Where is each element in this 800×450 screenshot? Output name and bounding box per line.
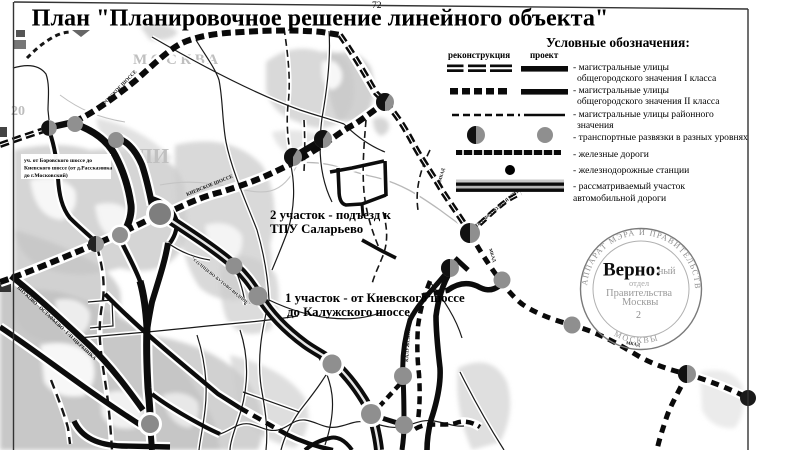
svg-text:- магистральные улицы районног: - магистральные улицы районного [573, 109, 714, 120]
svg-text:- магистральные улицы: - магистральные улицы [573, 62, 669, 73]
svg-text:Киевского шоссе (от д.Рассказо: Киевского шоссе (от д.Рассказовка [24, 165, 112, 172]
svg-text:автомобильной дороги: автомобильной дороги [573, 193, 666, 204]
svg-text:проект: проект [530, 50, 559, 60]
svg-text:- транспортные развязки в разн: - транспортные развязки в разных уровнях [573, 132, 748, 143]
svg-text:общегородского значения I клас: общегородского значения I класса [577, 73, 717, 84]
svg-text:до г.Московский): до г.Московский) [24, 172, 68, 179]
svg-text:отдел: отдел [629, 278, 650, 288]
svg-text:2 участок - подъезд к: 2 участок - подъезд к [270, 208, 391, 222]
svg-text:Условные обозначения:: Условные обозначения: [546, 35, 690, 50]
svg-text:Москвы: Москвы [622, 297, 658, 308]
svg-text:- магистральные улицы: - магистральные улицы [573, 85, 669, 96]
svg-text:до Калужского шоссе: до Калужского шоссе [287, 305, 410, 319]
svg-text:- железнодорожные станции: - железнодорожные станции [573, 165, 689, 176]
svg-text:ТПУ Саларьево: ТПУ Саларьево [270, 222, 363, 236]
svg-text:72: 72 [372, 1, 382, 11]
svg-text:2: 2 [636, 310, 641, 321]
svg-text:общегородского значения II кла: общегородского значения II класса [577, 96, 720, 107]
svg-text:- рассматриваемый участок: - рассматриваемый участок [573, 181, 685, 192]
svg-text:План "Планировочное решение ли: План "Планировочное решение линейного об… [32, 5, 609, 32]
svg-text:ный: ный [658, 266, 676, 277]
svg-text:уч. от Боровского шоссе до: уч. от Боровского шоссе до [24, 158, 92, 164]
svg-text:- железные дороги: - железные дороги [573, 149, 649, 160]
svg-text:1 участок - от Киевского шоссе: 1 участок - от Киевского шоссе [285, 291, 465, 305]
svg-text:реконструкция: реконструкция [448, 50, 510, 60]
svg-text:значения: значения [577, 120, 614, 131]
